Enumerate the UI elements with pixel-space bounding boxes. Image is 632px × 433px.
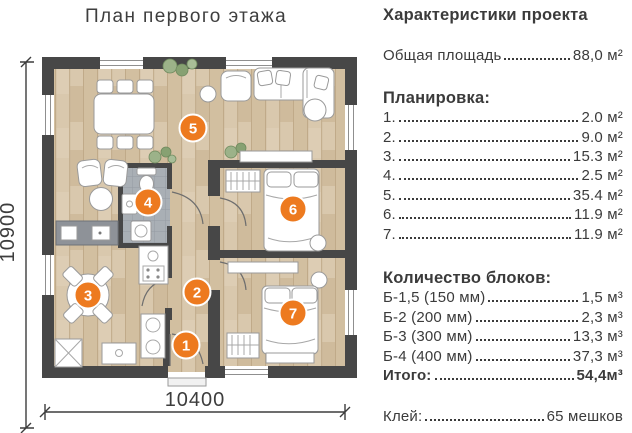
dot-leader <box>399 217 571 219</box>
layout-item-number: 4. <box>383 166 396 185</box>
window-left-2 <box>42 255 54 295</box>
layout-item-number: 5. <box>383 186 396 205</box>
layout-item-area: 15.3 м² <box>573 147 623 166</box>
block-item-1: Б-1,5 (150 мм) 1,5 м³ <box>383 288 623 307</box>
dot-leader <box>476 339 570 341</box>
room-badge-7: 7 <box>280 300 307 327</box>
dot-leader <box>399 178 579 180</box>
room-number-4: 4 <box>144 195 153 212</box>
layout-item-7: 7. 11.9 м² <box>383 225 623 244</box>
total-area-value: 88,0 м² <box>573 46 623 65</box>
dot-leader <box>399 237 571 239</box>
dimension-width: 10400 <box>40 389 350 420</box>
blocks-total-label: Итого: <box>383 366 432 385</box>
layout-item-2: 2. 9.0 м² <box>383 128 623 147</box>
dimension-height: 10900 <box>0 57 34 433</box>
room-badge-2: 2 <box>184 279 211 306</box>
block-item-label: Б-4 (400 мм) <box>383 347 473 366</box>
total-area-row: Общая площадь 88,0 м² <box>383 46 623 65</box>
glue-value: 65 мешков <box>547 407 623 426</box>
layout-item-number: 6. <box>383 205 396 224</box>
layout-header: Планировка: <box>383 89 623 108</box>
blocks-header: Количество блоков: <box>383 269 623 288</box>
layout-item-area: 2.5 м² <box>581 166 623 185</box>
layout-item-5: 5. 35.4 м² <box>383 186 623 205</box>
block-item-label: Б-1,5 (150 мм) <box>383 288 485 307</box>
glue-row: Клей: 65 мешков <box>383 407 623 426</box>
entrance-step <box>168 378 206 386</box>
layout-item-3: 3. 15.3 м² <box>383 147 623 166</box>
room-number-1: 1 <box>182 338 190 355</box>
block-item-label: Б-3 (300 мм) <box>383 327 473 346</box>
dot-leader <box>399 120 579 122</box>
specs-panel: Характеристики проекта Общая площадь 88,… <box>383 6 623 426</box>
window-bottom-1 <box>225 366 268 378</box>
layout-item-6: 6. 11.9 м² <box>383 205 623 224</box>
room-badge-4: 4 <box>135 189 162 216</box>
dot-leader <box>399 198 570 200</box>
room-number-3: 3 <box>84 288 92 305</box>
dot-leader <box>476 359 570 361</box>
glue-label: Клей: <box>383 407 422 426</box>
block-item-label: Б-2 (200 мм) <box>383 308 473 327</box>
block-item-2: Б-2 (200 мм) 2,3 м³ <box>383 308 623 327</box>
room-number-7: 7 <box>289 306 297 323</box>
block-item-volume: 37,3 м³ <box>573 347 623 366</box>
room-badge-3: 3 <box>75 282 102 309</box>
layout-item-number: 2. <box>383 128 396 147</box>
block-item-volume: 13,3 м³ <box>573 327 623 346</box>
block-item-volume: 2,3 м³ <box>581 308 623 327</box>
layout-item-number: 3. <box>383 147 396 166</box>
dot-leader <box>399 140 579 142</box>
window-right-1 <box>345 105 357 150</box>
dot-leader <box>435 378 574 380</box>
window-top-1 <box>100 57 143 69</box>
dot-leader <box>504 58 569 60</box>
block-item-4: Б-4 (400 мм) 37,3 м³ <box>383 347 623 366</box>
window-top-2 <box>226 57 272 69</box>
dining-set <box>94 80 154 149</box>
dot-leader <box>476 320 579 322</box>
layout-item-1: 1. 2.0 м² <box>383 108 623 127</box>
block-item-volume: 1,5 м³ <box>581 288 623 307</box>
blocks-total-value: 54,4м³ <box>577 366 624 385</box>
dimension-width-label: 10400 <box>165 389 226 411</box>
window-right-2 <box>345 290 357 335</box>
room-badge-6: 6 <box>280 196 307 223</box>
total-area-label: Общая площадь <box>383 46 501 65</box>
room-number-6: 6 <box>289 202 297 219</box>
layout-item-number: 1. <box>383 108 396 127</box>
floor-plan-drawing: 1 2 3 4 5 6 7 <box>0 0 372 433</box>
room-number-5: 5 <box>189 121 197 138</box>
room-badge-1: 1 <box>173 332 200 359</box>
layout-item-area: 9.0 м² <box>581 128 623 147</box>
layout-item-area: 11.9 м² <box>574 225 623 244</box>
layout-item-number: 7. <box>383 225 396 244</box>
layout-item-area: 35.4 м² <box>573 186 623 205</box>
window-left-1 <box>42 95 54 135</box>
blocks-total-row: Итого: 54,4м³ <box>383 366 623 385</box>
layout-item-area: 11.9 м² <box>574 205 623 224</box>
specs-header: Характеристики проекта <box>383 6 623 25</box>
layout-item-4: 4. 2.5 м² <box>383 166 623 185</box>
dot-leader <box>488 300 578 302</box>
block-item-3: Б-3 (300 мм) 13,3 м³ <box>383 327 623 346</box>
dimension-height-label: 10900 <box>0 202 19 263</box>
room-number-2: 2 <box>193 285 201 302</box>
page: План первого этажа <box>0 0 632 433</box>
room-badge-5: 5 <box>180 115 207 142</box>
dot-leader <box>425 419 543 421</box>
dot-leader <box>399 159 570 161</box>
layout-item-area: 2.0 м² <box>581 108 623 127</box>
